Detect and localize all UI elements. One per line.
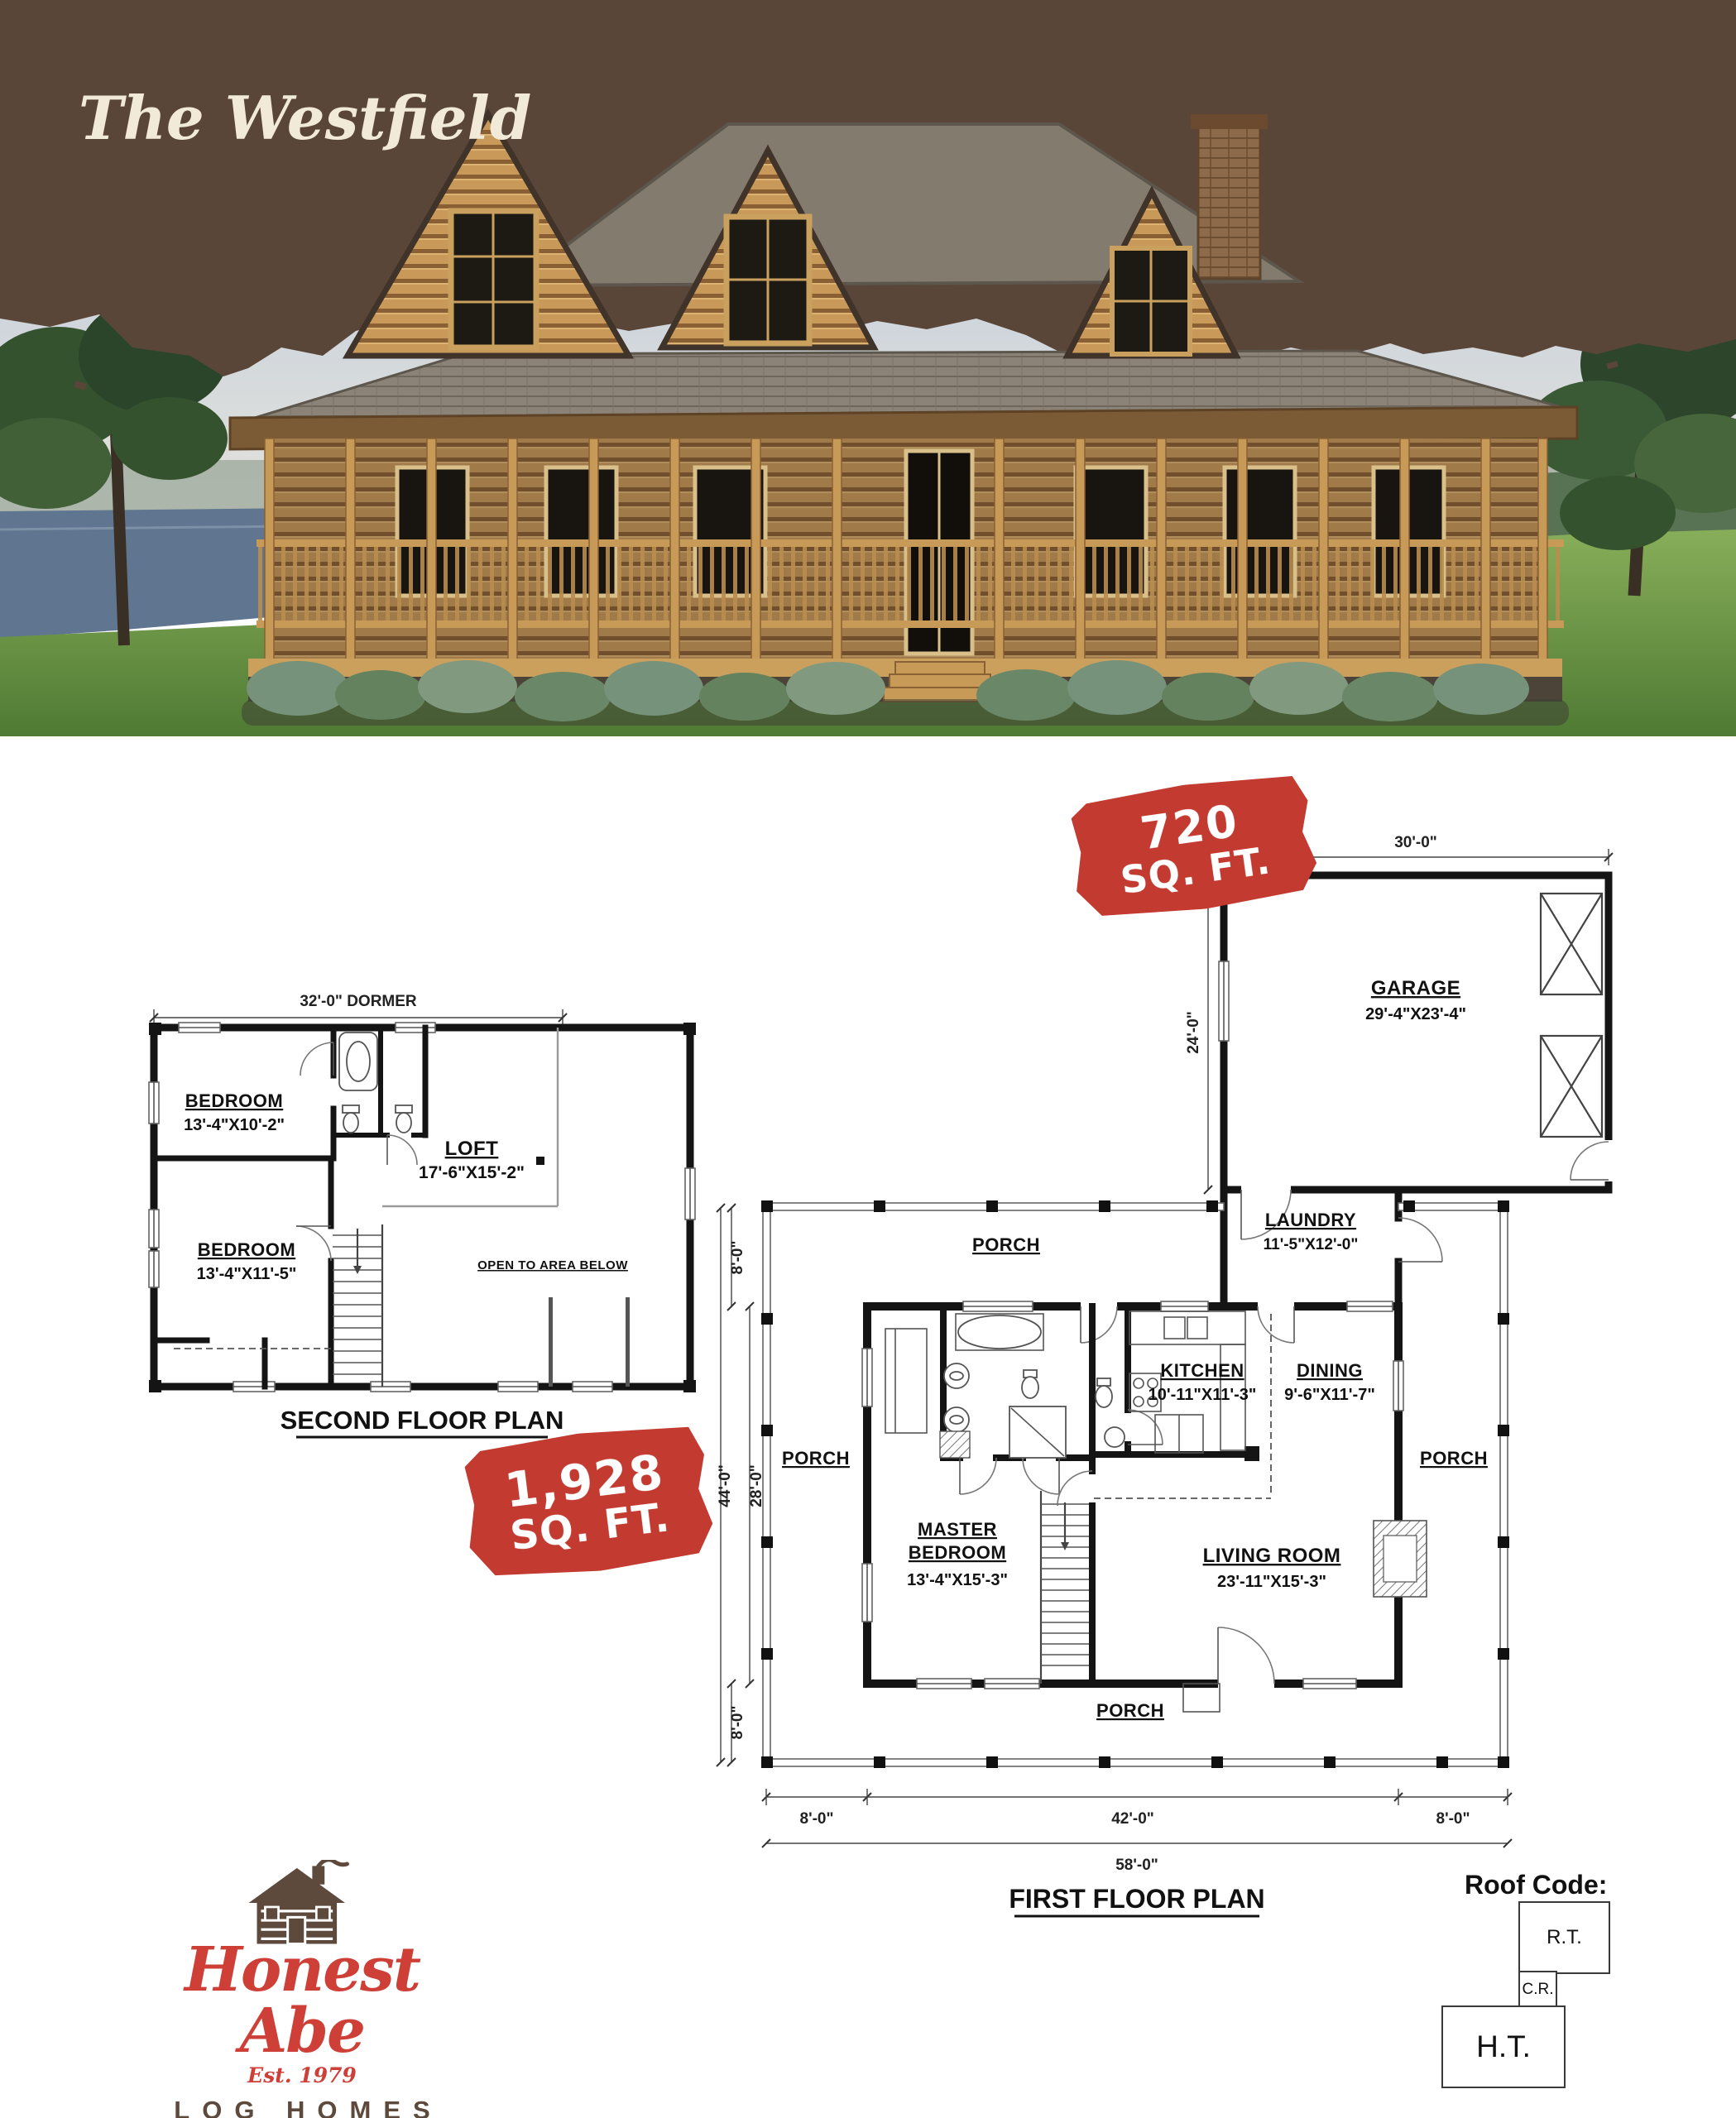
roof-code-rt-box: R.T. xyxy=(1518,1901,1610,1974)
sf-loft-edge xyxy=(382,1028,630,1387)
garage-label: GARAGE xyxy=(1371,977,1460,999)
ff-fireplace xyxy=(1374,1521,1427,1597)
laundry-label: LAUNDRY xyxy=(1265,1210,1356,1230)
porch-left-label: PORCH xyxy=(782,1448,850,1469)
first-floor-plan: GARAGE 29'-4"X23'-4" 30'-0" 24'-0" LAUND… xyxy=(712,778,1630,1936)
master-label-1: MASTER xyxy=(918,1519,997,1540)
kitchen-label: KITCHEN xyxy=(1160,1360,1244,1381)
svg-text:28'-0": 28'-0" xyxy=(748,1464,765,1507)
roof-code-cr: C.R. xyxy=(1523,1981,1554,1999)
garage-size: 29'-4"X23'-4" xyxy=(1365,1005,1466,1023)
roof-code-legend: Roof Code: R.T. C.R. H.T. xyxy=(1438,1863,1637,2107)
porch-bottom-label: PORCH xyxy=(1096,1700,1164,1721)
page-title: The Westfield xyxy=(79,83,531,153)
svg-text:8'-0": 8'-0" xyxy=(1436,1810,1470,1828)
svg-text:8'-0": 8'-0" xyxy=(729,1706,746,1740)
sf-bathroom xyxy=(339,1033,412,1133)
porch-right-label: PORCH xyxy=(1420,1448,1488,1469)
dining-size: 9'-6"X11'-7" xyxy=(1284,1386,1375,1404)
svg-text:24'-0": 24'-0" xyxy=(1185,1011,1202,1054)
svg-text:58'-0": 58'-0" xyxy=(1115,1857,1158,1874)
hero-photo: The Westfield xyxy=(0,0,1736,745)
living-label: LIVING ROOM xyxy=(1203,1545,1341,1567)
dim-dormer: 32'-0" DORMER xyxy=(150,993,567,1026)
roof-code-rt: R.T. xyxy=(1547,1926,1582,1949)
sf-bedroom-bottom-label: BEDROOM xyxy=(198,1239,295,1260)
sf-stairs xyxy=(333,1224,382,1387)
laundry-size: 11'-5"X12'-0" xyxy=(1264,1236,1359,1253)
logo-est-text: Est. 1979 xyxy=(124,2063,480,2087)
sf-bedroom-top-size: 13'-4"X10'-2" xyxy=(184,1116,285,1134)
svg-text:44'-0": 44'-0" xyxy=(717,1464,734,1507)
sf-loft-size: 17'-6"X15'-2" xyxy=(419,1163,525,1182)
front-step xyxy=(1183,1684,1220,1712)
ff-left-dims: 44'-0" 28'-0" 8'-0" 8'-0" xyxy=(717,1204,765,1766)
master-size: 13'-4"X15'-3" xyxy=(907,1571,1008,1589)
garage-doors xyxy=(1541,894,1602,1137)
logo-brand-text: Honest Abe xyxy=(124,1939,480,2062)
svg-text:42'-0": 42'-0" xyxy=(1111,1810,1154,1828)
ff-kitchen-fixtures xyxy=(1094,1311,1271,1498)
honest-abe-logo: Honest Abe Est. 1979 LOG HOMES xyxy=(124,1860,480,2118)
ff-master-bath xyxy=(885,1314,1066,1494)
dim-garage-depth: 24'-0" xyxy=(1185,871,1212,1194)
roof-code-ht: H.T. xyxy=(1476,2029,1531,2064)
ff-bottom-dims: 8'-0" 42'-0" 8'-0" 58'-0" xyxy=(762,1789,1512,1874)
sf-open-note: OPEN TO AREA BELOW xyxy=(477,1258,628,1272)
living-size: 23'-11"X15'-3" xyxy=(1217,1573,1326,1591)
master-label-2: BEDROOM xyxy=(909,1542,1006,1563)
sf-bedroom-bottom-size: 13'-4"X11'-5" xyxy=(197,1265,297,1283)
cabin-icon xyxy=(240,1860,364,1946)
garage-sqft-unit: SQ. FT. xyxy=(1118,841,1273,900)
second-floor-plan: 32'-0" DORMER xyxy=(124,985,712,1464)
roof-code-cr-box: C.R. xyxy=(1518,1971,1557,2009)
chimney xyxy=(1191,114,1268,279)
roof-code-label: Roof Code: xyxy=(1465,1870,1607,1900)
brochure-page: The Westfield 32'-0" DORMER xyxy=(0,0,1736,2118)
svg-text:8'-0": 8'-0" xyxy=(800,1810,834,1828)
first-floor-title: FIRST FLOOR PLAN xyxy=(1009,1884,1264,1914)
porch-top-label: PORCH xyxy=(972,1234,1040,1255)
logo-wordmark: LOG HOMES xyxy=(124,2096,480,2118)
dining-label: DINING xyxy=(1297,1360,1363,1381)
roof-code-ht-box: H.T. xyxy=(1441,2005,1566,2088)
sf-loft-label: LOFT xyxy=(445,1138,499,1160)
svg-text:8'-0": 8'-0" xyxy=(729,1241,746,1275)
kitchen-size: 10'-11"X11'-3" xyxy=(1149,1386,1257,1404)
svg-text:32'-0" DORMER: 32'-0" DORMER xyxy=(300,993,417,1010)
svg-text:30'-0": 30'-0" xyxy=(1394,834,1437,851)
ff-stairs xyxy=(1041,1471,1092,1684)
sf-bedroom-top-label: BEDROOM xyxy=(185,1090,283,1111)
second-floor-title: SECOND FLOOR PLAN xyxy=(281,1406,564,1435)
